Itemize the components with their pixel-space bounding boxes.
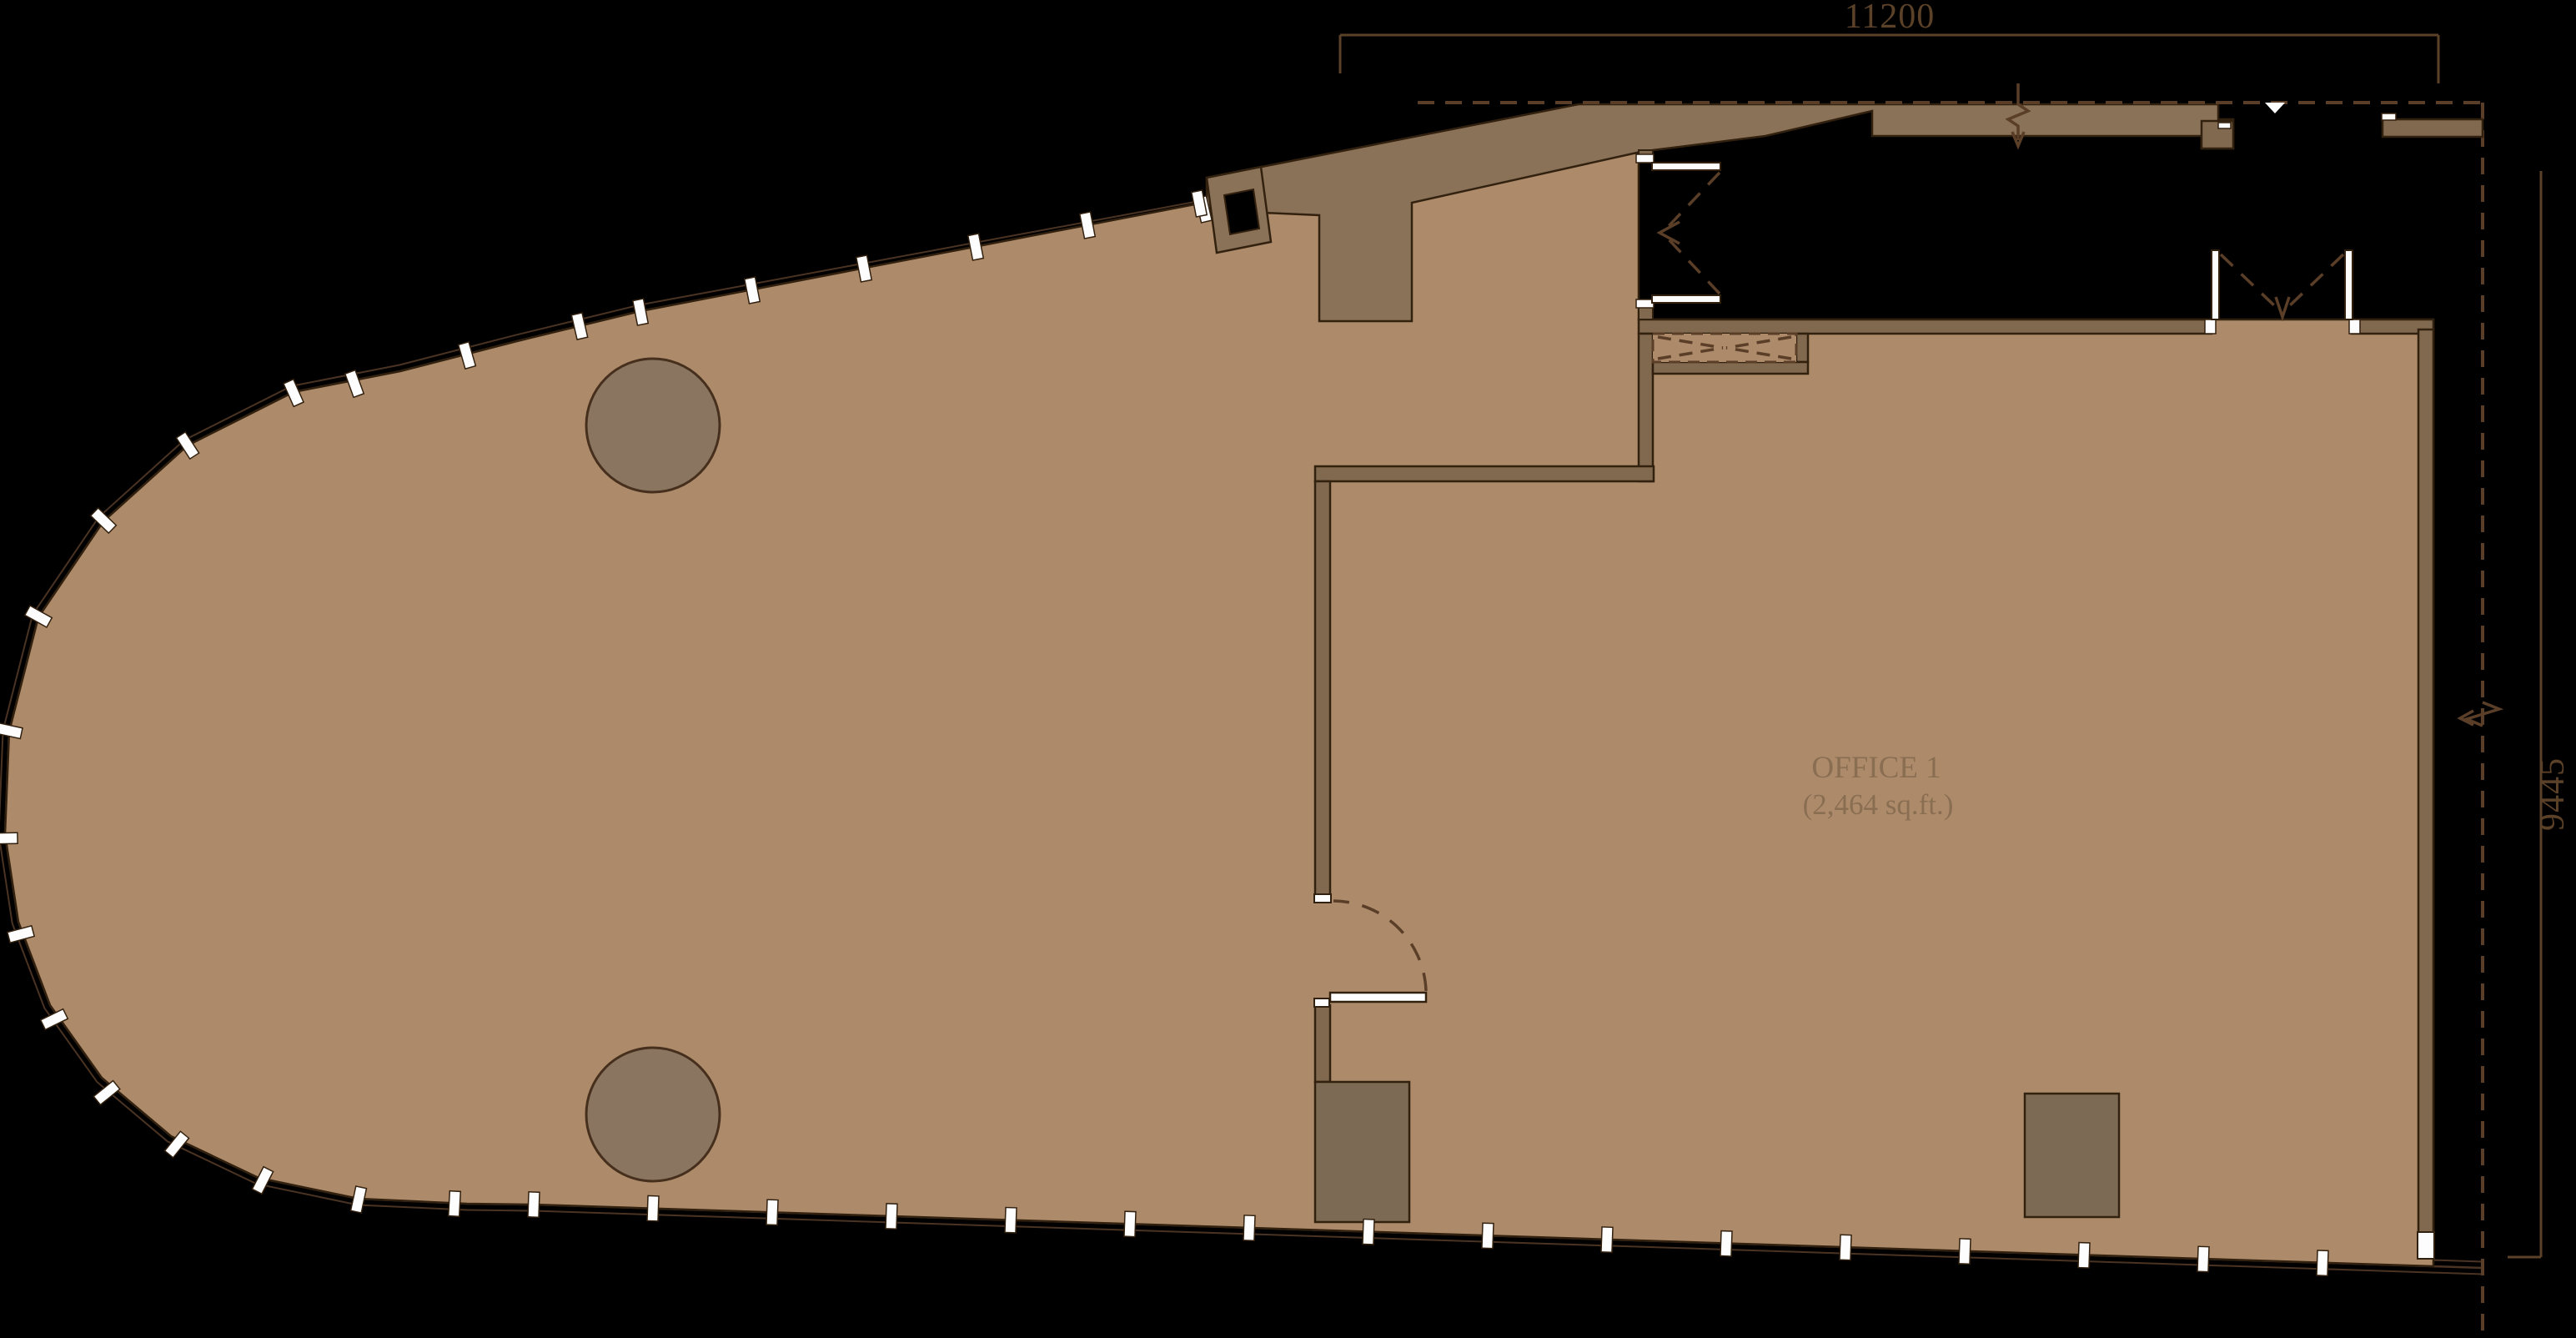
louvre-vent <box>1653 334 1796 362</box>
service-block <box>1315 1082 1409 1222</box>
mullion <box>1363 1220 1374 1245</box>
door-sill <box>1636 299 1654 308</box>
mullion <box>647 1195 659 1220</box>
mullion <box>1124 1211 1136 1236</box>
mullion <box>1601 1227 1613 1252</box>
door-sill <box>2349 319 2360 334</box>
column-circle-bottom <box>586 1048 720 1181</box>
mullion <box>1959 1239 1971 1264</box>
mullion <box>1482 1223 1494 1248</box>
mullion <box>1005 1207 1017 1232</box>
floor-plan-drawing: 11200 9445 OFFICE 1 (2,464 sq.ft.) <box>0 0 2576 1338</box>
office-label: OFFICE 1 <box>1811 751 1941 785</box>
mullion <box>1243 1215 1255 1240</box>
office-right-wall <box>2418 329 2433 1257</box>
mullion <box>1720 1231 1732 1256</box>
mullion <box>766 1200 778 1225</box>
door-leaf-left <box>2212 250 2219 319</box>
office-furniture-block <box>2025 1094 2119 1217</box>
louvre-right-wall <box>1796 334 1808 362</box>
door-leaf-top <box>1652 163 1720 170</box>
door-leaf-right <box>2345 250 2353 319</box>
mullion <box>2078 1243 2090 1268</box>
door-sill <box>2205 319 2216 334</box>
mullion <box>2197 1246 2209 1271</box>
door-leaf-bottom <box>1652 295 1720 303</box>
mullion <box>449 1191 461 1217</box>
wall-end-block-opening <box>1224 189 1259 234</box>
partition-vertical-upper <box>1315 481 1330 897</box>
core-door-leaf <box>2218 123 2231 128</box>
louvre-bottom-wall <box>1653 362 1808 374</box>
office-right-wall-end-cap <box>2418 1232 2434 1259</box>
dimension-right-value: 9445 <box>2533 757 2572 831</box>
office-area-label: (2,464 sq.ft.) <box>1803 788 1954 821</box>
core-door-leaf <box>2382 113 2396 120</box>
interior-door-leaf <box>1330 993 1426 1002</box>
mullion <box>2317 1250 2328 1275</box>
partition-horizontal <box>1315 466 1654 481</box>
mullion <box>528 1192 540 1217</box>
mullion <box>1840 1235 1851 1260</box>
office-top-wall-left-segment <box>1639 319 2212 334</box>
mullion <box>886 1204 897 1229</box>
column-circle-top <box>586 359 720 492</box>
dimension-top-value: 11200 <box>1845 0 1935 36</box>
door-sill <box>1636 154 1654 163</box>
door-jamb-bottom <box>1314 998 1329 1007</box>
louvre-left-wall <box>1639 334 1653 481</box>
partition-vertical-lower <box>1315 1005 1330 1082</box>
core-wall-right <box>2383 119 2483 137</box>
mullion <box>0 832 18 844</box>
floor-plan-canvas: 11200 9445 OFFICE 1 (2,464 sq.ft.) <box>0 0 2576 1338</box>
door-jamb-top <box>1314 894 1331 903</box>
